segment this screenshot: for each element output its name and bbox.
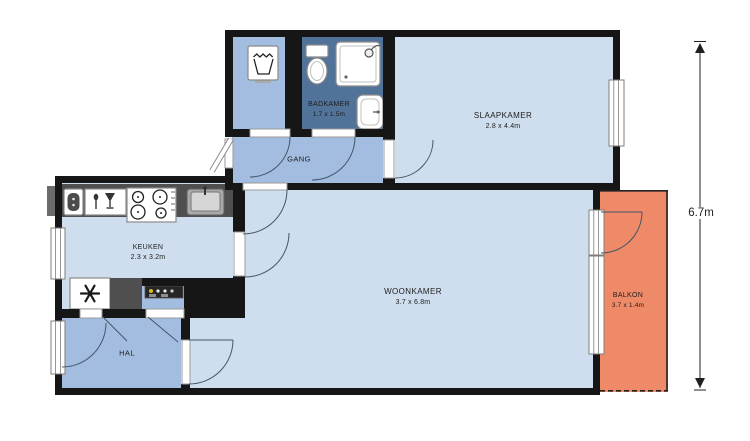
dishwasher-icon	[85, 189, 126, 215]
keuken-label: KEUKEN 2.3 x 3.2m	[131, 243, 166, 263]
wall	[593, 352, 600, 395]
slaapkamer-name: SLAAPKAMER	[474, 110, 532, 122]
wall	[290, 129, 312, 137]
washbasin-icon	[357, 95, 383, 129]
door-threshold-slaapkamer	[384, 140, 394, 178]
wall	[102, 309, 146, 318]
laundry-icon	[248, 46, 278, 83]
counter-block	[110, 278, 142, 309]
wall	[55, 388, 600, 395]
floorplan: BADKAMER 1.7 x 1.5m GANG SLAAPKAMER 2.8 …	[0, 0, 750, 441]
wall	[225, 30, 233, 137]
wall	[613, 30, 620, 83]
wall	[383, 37, 395, 140]
woonkamer-name: WOONKAMER	[384, 286, 442, 298]
badkamer-dims: 1.7 x 1.5m	[308, 110, 350, 119]
door-threshold-gang-woonkamer	[243, 183, 287, 190]
slaapkamer-label: SLAAPKAMER 2.8 x 4.4m	[474, 110, 532, 132]
wall	[142, 278, 184, 286]
balkon-label: BALKON 3.7 x 1.4m	[612, 291, 644, 311]
door-threshold-washok	[250, 129, 290, 137]
room-woonkamer-ext	[190, 318, 245, 388]
wall	[593, 190, 600, 210]
height-dimension-label: 6.7m	[685, 207, 717, 219]
badkamer-label: BADKAMER 1.7 x 1.5m	[308, 100, 350, 120]
keuken-name: KEUKEN	[131, 243, 166, 253]
gang-label: GANG	[287, 155, 311, 166]
wall	[613, 143, 620, 190]
window-hal	[51, 321, 65, 374]
keuken-dims: 2.3 x 3.2m	[131, 253, 166, 263]
wall	[383, 178, 395, 183]
wall	[225, 30, 620, 37]
boiler-icon	[64, 189, 83, 215]
window-keuken	[51, 228, 65, 279]
dimension-arrow-down	[695, 378, 705, 388]
stove-icon	[127, 188, 176, 222]
kitchen-sink-icon	[187, 186, 224, 215]
wall	[55, 176, 233, 183]
wall	[232, 129, 250, 137]
wall	[55, 309, 80, 318]
door-threshold-meterkast	[146, 309, 184, 318]
wall	[285, 37, 302, 131]
woonkamer-dims: 3.7 x 6.8m	[384, 298, 442, 308]
toilet-icon	[306, 45, 328, 84]
balkon-name: BALKON	[612, 291, 644, 301]
balcony-door-glass	[589, 210, 604, 255]
hal-name: HAL	[119, 349, 135, 360]
badkamer-name: BADKAMER	[308, 100, 350, 110]
woonkamer-label: WOONKAMER 3.7 x 6.8m	[384, 286, 442, 308]
exterior-shaft	[47, 186, 55, 216]
wall	[181, 384, 190, 395]
wall	[181, 318, 190, 340]
dimension-arrow-up	[695, 43, 705, 53]
window-woonkamer-balkon	[589, 256, 604, 354]
door-threshold-badkamer	[312, 129, 355, 137]
balkon-dims: 3.7 x 1.4m	[612, 301, 644, 310]
wall	[184, 278, 245, 318]
slaapkamer-dims: 2.8 x 4.4m	[474, 122, 532, 132]
hal-label: HAL	[119, 349, 135, 360]
wall	[355, 129, 383, 137]
window-slaapkamer	[609, 80, 624, 146]
door-threshold-hal-woonkamer	[182, 340, 190, 384]
door-threshold-keuken-woonkamer	[234, 232, 245, 276]
wall	[287, 183, 620, 190]
meter-panel-icon	[145, 286, 183, 298]
wall	[55, 176, 62, 230]
door-threshold-hal-closet	[80, 309, 102, 318]
floorplan-drawing	[0, 0, 750, 441]
fridge-icon	[70, 278, 110, 309]
shower-icon	[336, 42, 380, 86]
gang-name: GANG	[287, 155, 311, 166]
